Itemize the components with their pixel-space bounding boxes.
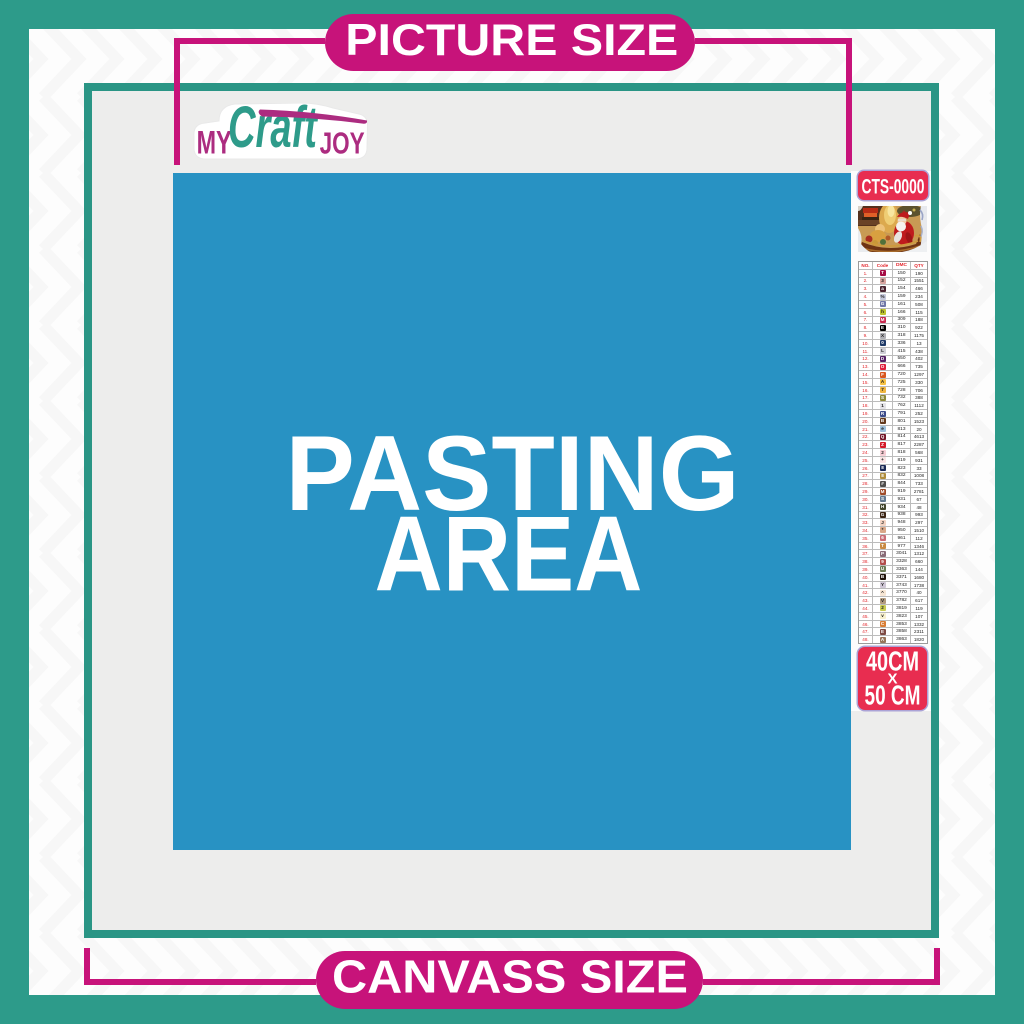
svg-text:JOY: JOY (320, 126, 365, 160)
svg-text:CTS-0000: CTS-0000 (862, 175, 925, 199)
svg-text:AREA: AREA (375, 495, 643, 614)
svg-text:50 CM: 50 CM (865, 680, 921, 711)
svg-text:PICTURE SIZE: PICTURE SIZE (345, 16, 678, 65)
svg-text:CANVASS SIZE: CANVASS SIZE (332, 951, 688, 1003)
